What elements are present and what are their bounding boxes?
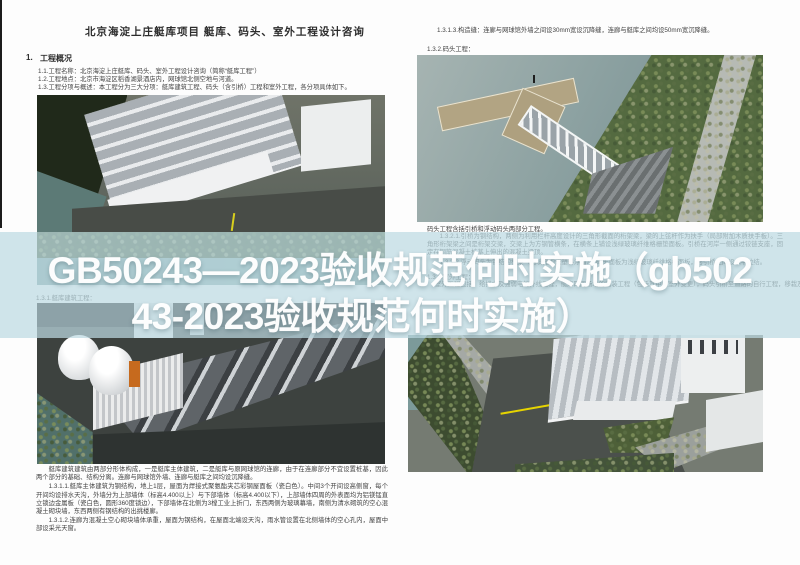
left-page-title: 北京海淀上庄艇库项目 艇库、码头、室外工程设计咨询 [85,24,365,39]
person-figure [533,75,535,83]
water-corner [37,393,93,464]
overview-line-3: 1.3.工程分项与概述：本工程分为三大分项：艇库建筑工程、码头（含引桥）工程和室… [38,84,351,91]
overview-line-2: 1.2.工程地点：北京市海淀区稻香湖景酒店内，网球馆北侧空地与河道。 [38,76,237,83]
scan-edge-artifact [0,0,2,228]
section-number: 1. [26,53,33,62]
white-building-right [706,390,763,452]
overview-line-1: 1.1.工程名称：北京海淀上庄艇库、码头、室外工程设计咨询（简称“艇库工程”） [38,68,261,75]
article-cover-image: 北京海淀上庄艇库项目 艇库、码头、室外工程设计咨询 1. 工程概况 1.1.工程… [0,0,800,565]
paragraph: 1.3.1.2.连廊为混凝土空心砌块墙体承重，屋面为钢结构，在屋面北端设天沟，雨… [36,517,388,533]
rendering-pier-footbridge [417,55,763,222]
caption-dock-works: 1.3.2.码头工程： [427,44,474,53]
tank-2 [89,346,134,394]
tennis-hall-block [301,99,371,171]
tennis-hall-windows [688,340,738,354]
joint-line: 1.3.1.3.构造缝：连廊与网球馆外墙之间设30mm宽设沉降缝，连廊与艇库之间… [437,27,713,34]
section-heading: 工程概况 [40,53,72,64]
boathouse-front-wall [573,401,676,420]
rendering-site-aerial [408,335,763,472]
headline-line2: 43-2023验收规范何时实施） [0,286,762,340]
orange-door-accent [129,361,139,387]
building-description: 艇库建筑建筑由两部分形体构成，一是艇库主体建筑，二是艇库与原网球馆的连廊，由于在… [36,466,388,535]
paragraph: 艇库建筑建筑由两部分形体构成，一是艇库主体建筑，二是艇库与原网球馆的连廊，由于在… [36,466,388,482]
paragraph: 1.3.1.1.艇库主体建筑为钢结构，地上1层，屋面为焊接式聚氨酯夹芯彩钢屋面板… [36,483,388,516]
